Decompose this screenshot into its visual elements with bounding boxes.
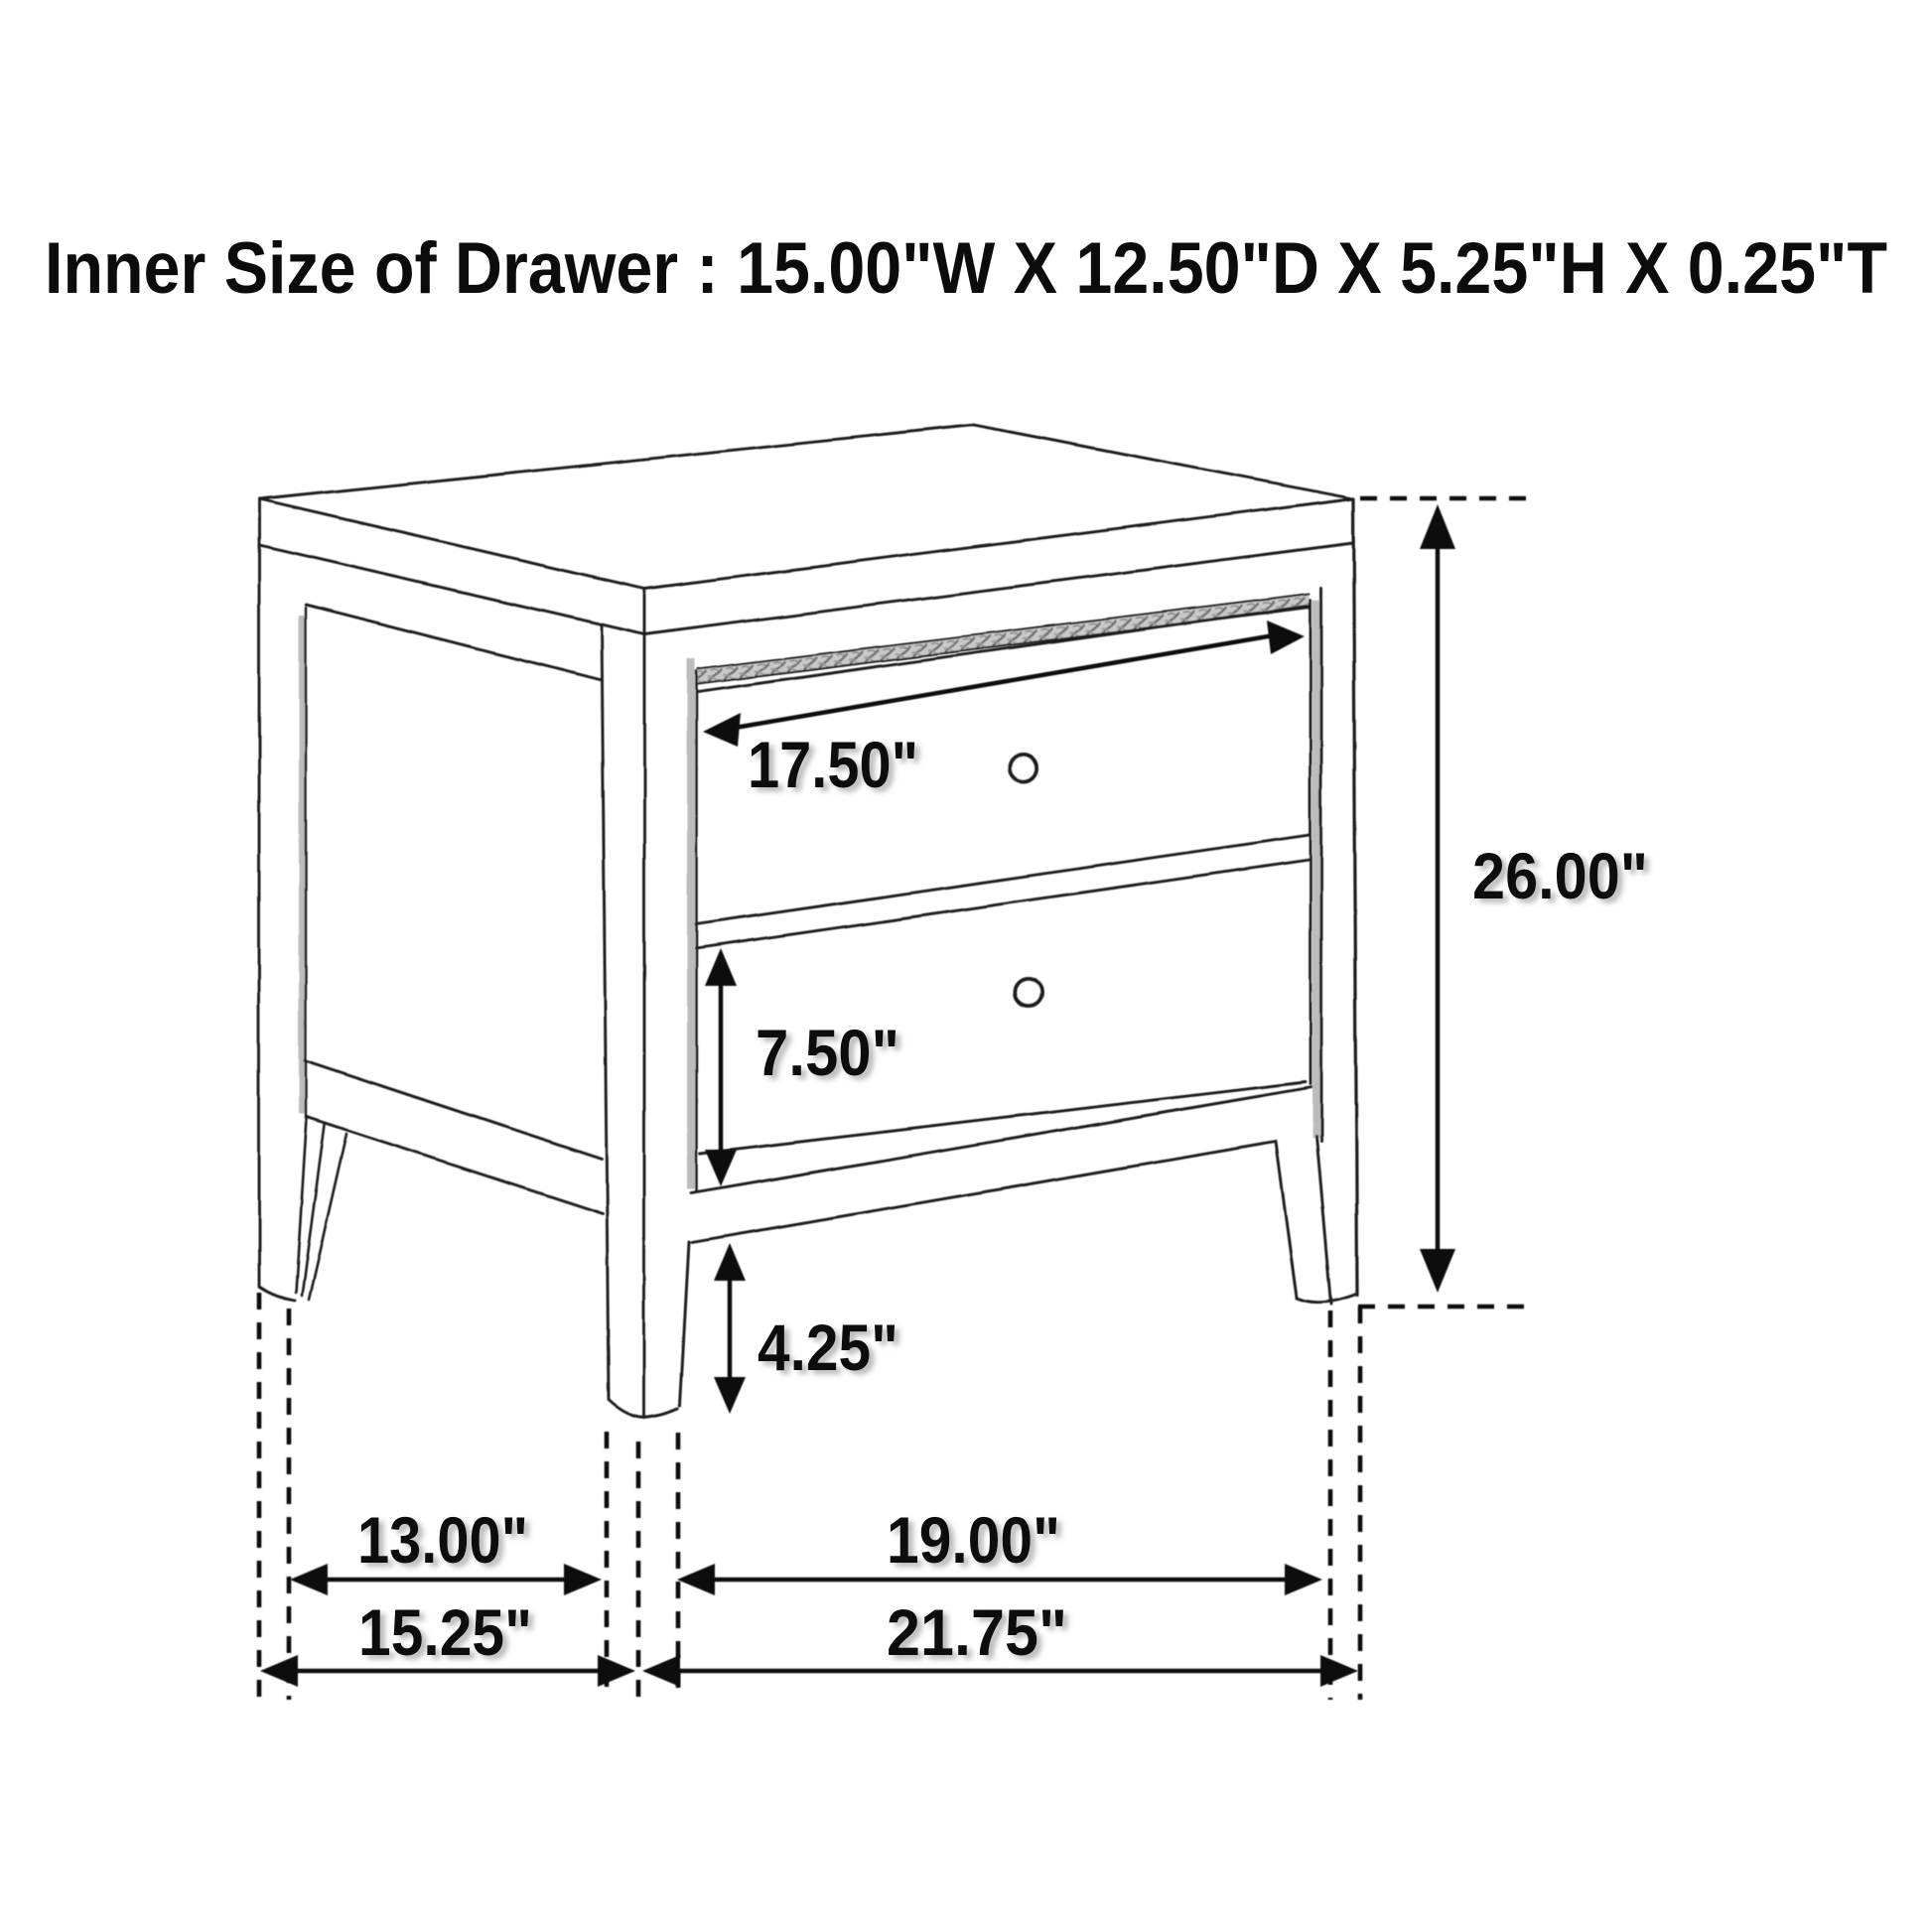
svg-text:21.75": 21.75" bbox=[887, 1595, 1067, 1669]
svg-text:7.50": 7.50" bbox=[756, 1016, 899, 1089]
svg-text:26.00": 26.00" bbox=[1472, 839, 1648, 912]
svg-text:13.00": 13.00" bbox=[357, 1503, 528, 1577]
svg-text:Inner Size of Drawer : 15.00"W: Inner Size of Drawer : 15.00"W X 12.50"D… bbox=[45, 228, 1887, 309]
svg-text:19.00": 19.00" bbox=[887, 1503, 1060, 1577]
svg-text:17.50": 17.50" bbox=[748, 728, 918, 801]
svg-text:4.25": 4.25" bbox=[758, 1311, 898, 1384]
svg-text:15.25": 15.25" bbox=[358, 1595, 532, 1669]
